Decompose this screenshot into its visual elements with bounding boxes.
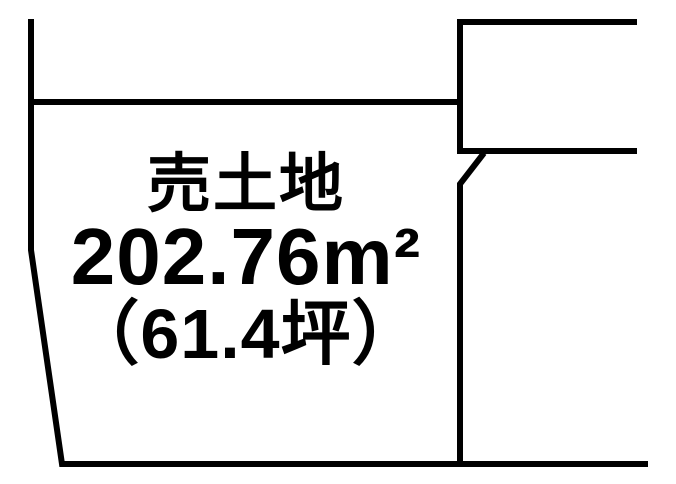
right-boundary-notch-line [460,153,484,464]
plot-diagram: 売土地 202.76m² （61.4坪） [0,0,676,484]
parcel-label: 売土地 202.76m² （61.4坪） [30,148,462,374]
parcel-area-square-meters: 202.76m² [30,220,462,294]
parcel-area-tsubo: （61.4坪） [30,294,462,374]
parcel-title: 売土地 [30,148,462,220]
neighbor-lot-boundary-line [460,22,637,151]
